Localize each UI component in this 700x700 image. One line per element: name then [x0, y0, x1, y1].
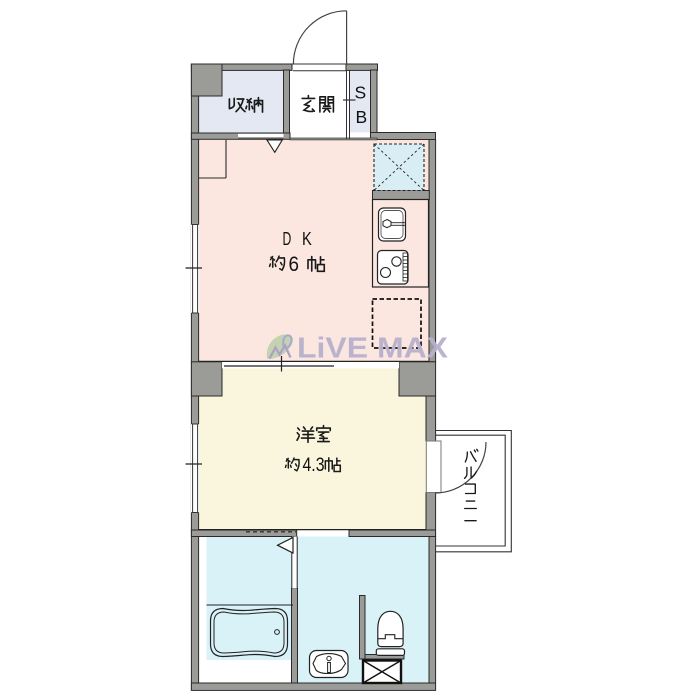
svg-text:LiVE MAX: LiVE MAX [297, 333, 448, 365]
svg-text:S: S [355, 83, 367, 103]
svg-text:4.3: 4.3 [303, 454, 325, 476]
svg-text:K: K [302, 228, 312, 249]
svg-text:D: D [283, 228, 292, 249]
svg-text:B: B [356, 107, 368, 127]
svg-text:6: 6 [289, 253, 300, 276]
